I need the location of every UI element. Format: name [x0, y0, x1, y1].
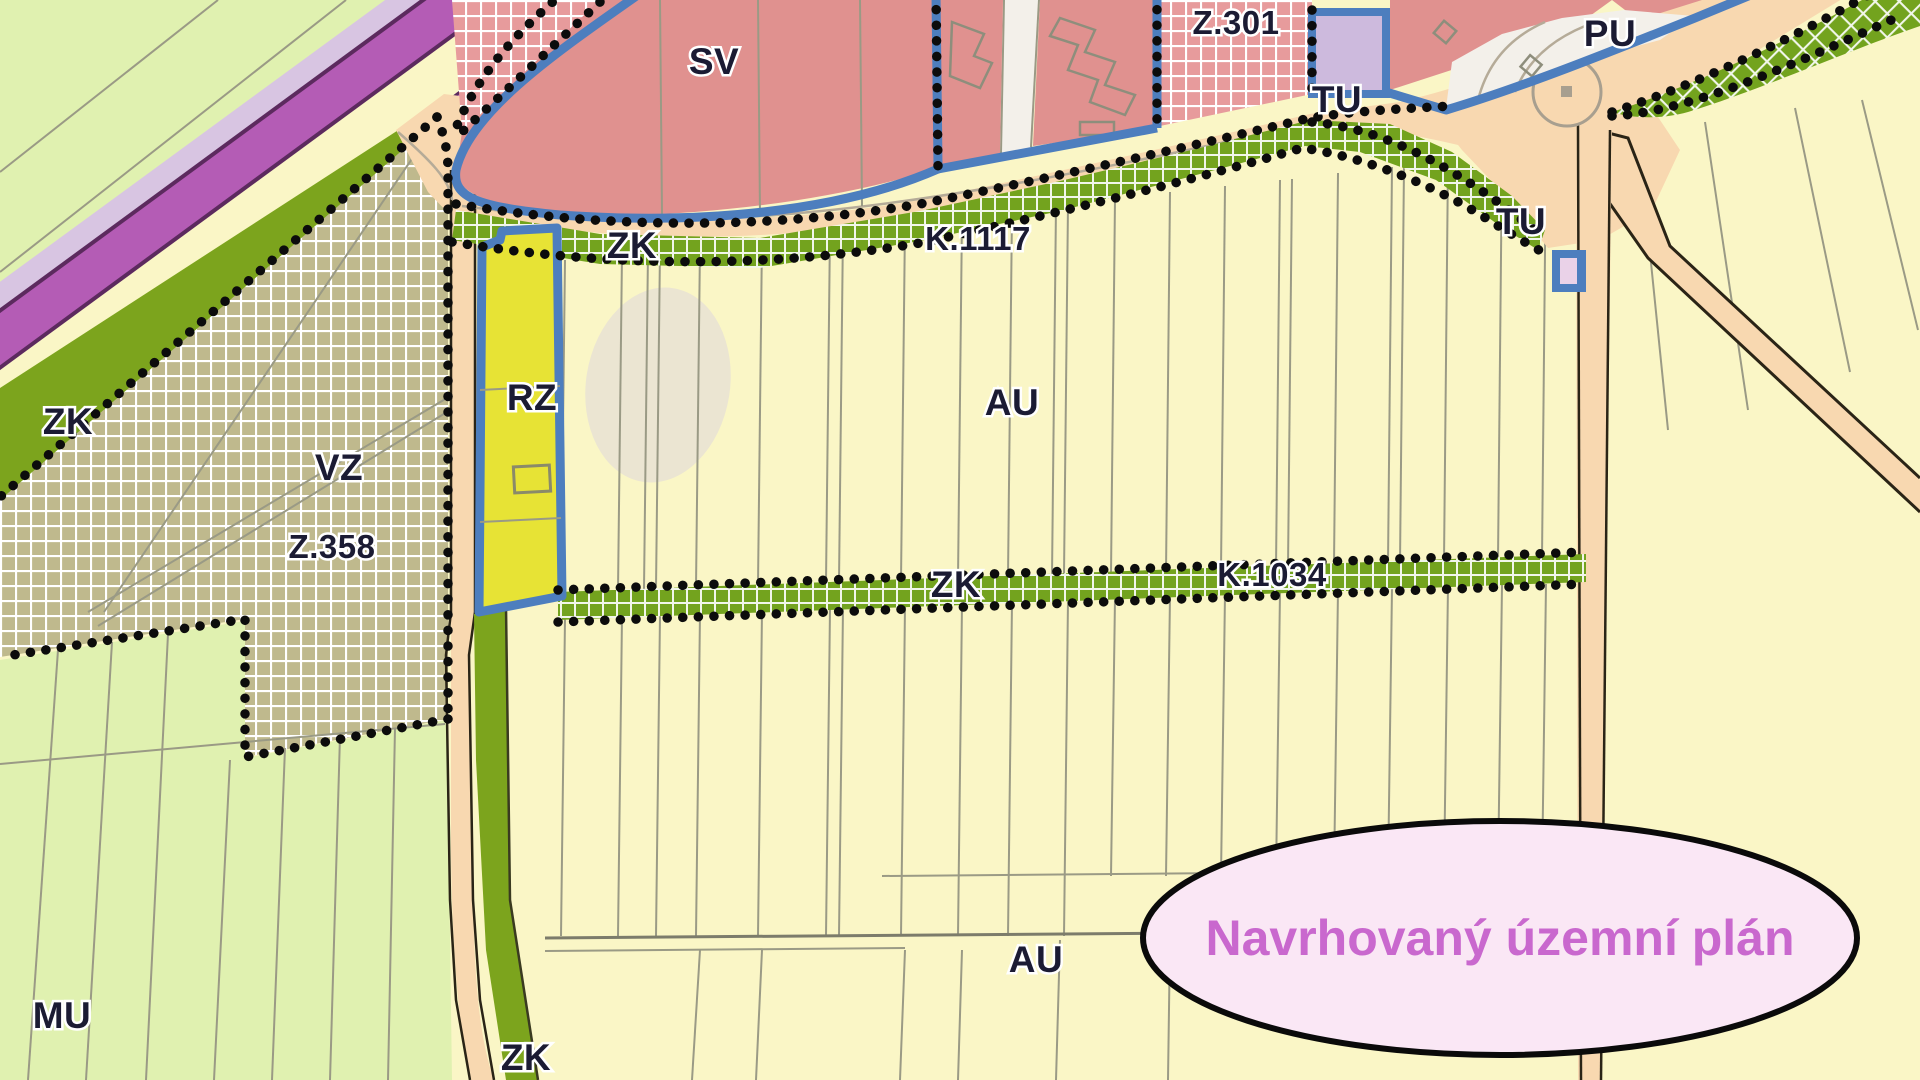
zone-label-rz: RZ — [507, 377, 557, 418]
rz-area — [479, 228, 562, 612]
zone-label-au-lower: AU — [1009, 939, 1063, 980]
zone-label-zk-upper-left: ZK — [43, 401, 93, 442]
zone-label-k1034: K.1034 — [1217, 556, 1327, 593]
zone-label-au-upper: AU — [985, 382, 1039, 423]
zone-label-zk-bottom: ZK — [501, 1037, 551, 1078]
zone-label-vz: VZ — [315, 447, 363, 488]
zone-label-k1117: K.1117 — [925, 220, 1031, 257]
zone-label-z358: Z.358 — [289, 528, 376, 565]
zoning-map-viewport: ZK VZ Z.358 RZ ZK SV K.1117 Z.301 TU PU … — [0, 0, 1920, 1080]
zone-label-tu-top: TU — [1312, 79, 1362, 120]
annotation-title: Navrhovaný územní plán — [1205, 910, 1794, 966]
zone-label-tu-right: TU — [1496, 201, 1546, 242]
tu-marker — [1552, 250, 1586, 292]
zoning-map: ZK VZ Z.358 RZ ZK SV K.1117 Z.301 TU PU … — [0, 0, 1920, 1080]
zone-label-mu: MU — [33, 995, 92, 1036]
zone-label-zk-top: ZK — [607, 225, 657, 266]
zone-label-zk-mid: ZK — [931, 564, 981, 605]
zone-label-pu: PU — [1584, 13, 1636, 54]
zone-label-z301: Z.301 — [1193, 4, 1280, 41]
annotation-callout: Navrhovaný územní plán — [1143, 821, 1857, 1055]
zone-label-sv: SV — [689, 41, 739, 82]
